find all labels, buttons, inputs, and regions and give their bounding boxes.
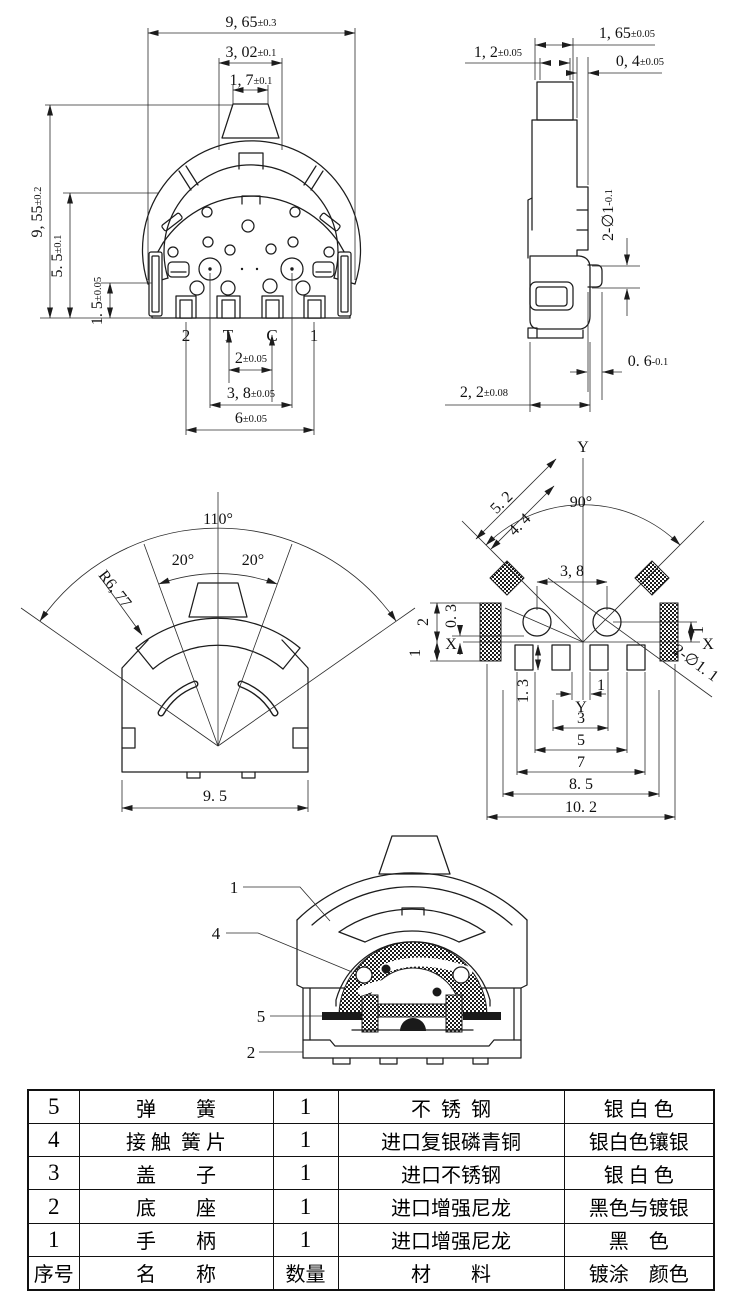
dim-side-plate-width: 0, 4±0.05 bbox=[616, 53, 664, 70]
front-view: 9, 65±0.3 3, 02±0.1 1, 7±0.1 9, 55±0.2 5… bbox=[29, 14, 360, 435]
row3-material: 进口不锈钢 bbox=[338, 1157, 564, 1190]
dim-rot-diag-outer: 5. 2 bbox=[487, 488, 516, 517]
row4-material: 进口复银磷青铜 bbox=[338, 1124, 564, 1157]
dim-rot-span102: 10. 2 bbox=[565, 799, 597, 816]
header-finish: 镀涂 颜色 bbox=[564, 1256, 714, 1290]
side-geometry bbox=[528, 82, 602, 338]
dim-side-stem-width: 1, 2±0.05 bbox=[474, 44, 522, 61]
dim-side-base-width: 2, 2±0.08 bbox=[460, 384, 508, 401]
dim-front-total-height: 9, 55±0.2 bbox=[29, 187, 46, 238]
section-geometry bbox=[297, 836, 527, 1064]
pin-label-t: T bbox=[223, 326, 234, 345]
row1-material: 进口增强尼龙 bbox=[338, 1223, 564, 1256]
row5-finish: 银 白 色 bbox=[564, 1090, 714, 1124]
table-row: 2 底 座 1 进口增强尼龙 黑色与镀银 bbox=[28, 1190, 714, 1223]
dim-rot-pad-height: 1. 3 bbox=[515, 679, 532, 703]
dim-front-body-height: 5. 5±0.1 bbox=[49, 235, 66, 278]
dim-rot-circle-span: 3, 8 bbox=[560, 563, 584, 580]
callout-4: 4 bbox=[212, 924, 221, 943]
row4-finish: 银白色镶银 bbox=[564, 1124, 714, 1157]
row3-no: 3 bbox=[28, 1157, 79, 1190]
row4-name: 接 触 簧 片 bbox=[79, 1124, 273, 1157]
row5-qty: 1 bbox=[273, 1090, 338, 1124]
section-callouts: 1 4 5 2 bbox=[212, 878, 352, 1062]
engineering-drawing: 9, 65±0.3 3, 02±0.1 1, 7±0.1 9, 55±0.2 5… bbox=[0, 0, 740, 1088]
callout-5: 5 bbox=[257, 1007, 266, 1026]
row5-no: 5 bbox=[28, 1090, 79, 1124]
fan-dimensions: 110° 20° 20° R6, 77 9. 5 bbox=[21, 492, 415, 812]
row3-finish: 银 白 色 bbox=[564, 1157, 714, 1190]
dim-fan-radius: R6, 77 bbox=[95, 567, 135, 611]
dim-rot-diag-inner: 4. 4 bbox=[505, 510, 534, 539]
dim-front-outer-width: 9, 65±0.3 bbox=[226, 14, 277, 31]
side-view: 1, 65±0.05 1, 2±0.05 0, 4±0.05 2-∅1-0.1 … bbox=[445, 25, 668, 412]
row4-no: 4 bbox=[28, 1124, 79, 1157]
section-view: 1 4 5 2 bbox=[212, 836, 527, 1064]
header-material: 材 料 bbox=[338, 1256, 564, 1290]
row2-finish: 黑色与镀银 bbox=[564, 1190, 714, 1223]
dim-fan-right-angle: 20° bbox=[242, 552, 264, 569]
row4-qty: 1 bbox=[273, 1124, 338, 1157]
front-pins bbox=[176, 296, 325, 318]
dim-side-pin-width: 0. 6-0.1 bbox=[628, 353, 669, 370]
axis-y-top-label: Y bbox=[577, 439, 589, 456]
header-qty: 数量 bbox=[273, 1256, 338, 1290]
callout-1: 1 bbox=[230, 878, 239, 897]
bom-table: 5 弹 簧 1 不 锈 钢 银 白 色 4 接 触 簧 片 1 进口复银磷青铜 … bbox=[27, 1089, 715, 1291]
dim-fan-width: 9. 5 bbox=[203, 788, 227, 805]
front-dimensions: 9, 65±0.3 3, 02±0.1 1, 7±0.1 9, 55±0.2 5… bbox=[29, 14, 355, 435]
dim-rot-left-2: 2 bbox=[415, 618, 432, 626]
dim-front-pin-pitch: 2±0.05 bbox=[235, 350, 267, 367]
dim-front-cap-width: 3, 02±0.1 bbox=[226, 44, 277, 61]
side-dimensions: 1, 65±0.05 1, 2±0.05 0, 4±0.05 2-∅1-0.1 … bbox=[445, 25, 668, 412]
dim-rot-gap: 1 bbox=[597, 677, 605, 694]
front-geometry bbox=[142, 104, 360, 318]
dim-front-rivet-span: 3, 8±0.05 bbox=[227, 385, 275, 402]
row2-name: 底 座 bbox=[79, 1190, 273, 1223]
row5-material: 不 锈 钢 bbox=[338, 1090, 564, 1124]
row5-name: 弹 簧 bbox=[79, 1090, 273, 1124]
dim-rot-span85: 8. 5 bbox=[569, 776, 593, 793]
table-row: 3 盖 子 1 进口不锈钢 银 白 色 bbox=[28, 1157, 714, 1190]
table-row: 4 接 触 簧 片 1 进口复银磷青铜 银白色镶银 bbox=[28, 1124, 714, 1157]
row1-finish: 黑 色 bbox=[564, 1223, 714, 1256]
fan-view: 110° 20° 20° R6, 77 9. 5 bbox=[21, 492, 415, 812]
row3-name: 盖 子 bbox=[79, 1157, 273, 1190]
row3-qty: 1 bbox=[273, 1157, 338, 1190]
row2-material: 进口增强尼龙 bbox=[338, 1190, 564, 1223]
rotated-view: Y X X 90° 5. 2 4. 4 2-∅1. 1 3, 8 2 1 0. … bbox=[407, 439, 721, 820]
dim-rot-span7: 7 bbox=[577, 754, 585, 771]
header-no: 序号 bbox=[28, 1256, 79, 1290]
dim-front-pin-span: 6±0.05 bbox=[235, 410, 267, 427]
table-header-row: 序号 名 称 数量 材 料 镀涂 颜色 bbox=[28, 1256, 714, 1290]
dim-rot-left-1: 1 bbox=[407, 649, 424, 657]
axis-x-left-label: X bbox=[445, 636, 457, 653]
axis-x-right-label: X bbox=[702, 636, 714, 653]
row1-no: 1 bbox=[28, 1223, 79, 1256]
table-row: 1 手 柄 1 进口增强尼龙 黑 色 bbox=[28, 1223, 714, 1256]
table-row: 5 弹 簧 1 不 锈 钢 银 白 色 bbox=[28, 1090, 714, 1124]
fan-geometry bbox=[122, 583, 308, 778]
dim-rot-angle: 90° bbox=[570, 494, 592, 511]
row2-no: 2 bbox=[28, 1190, 79, 1223]
drawing-sheet: 9, 65±0.3 3, 02±0.1 1, 7±0.1 9, 55±0.2 5… bbox=[0, 0, 740, 1300]
row2-qty: 1 bbox=[273, 1190, 338, 1223]
dim-rot-left-03: 0. 3 bbox=[443, 604, 460, 628]
header-name: 名 称 bbox=[79, 1256, 273, 1290]
dim-rot-right-1: 1 bbox=[690, 626, 707, 634]
dim-fan-total-angle: 110° bbox=[203, 511, 233, 528]
dim-side-holes: 2-∅1-0.1 bbox=[600, 189, 617, 241]
dim-front-tip-width: 1, 7±0.1 bbox=[230, 72, 273, 89]
dim-front-foot-height: 1. 5±0.05 bbox=[89, 277, 106, 325]
dim-rot-span5: 5 bbox=[577, 732, 585, 749]
dim-side-head-width: 1, 65±0.05 bbox=[599, 25, 655, 42]
front-holes bbox=[168, 207, 334, 295]
row1-name: 手 柄 bbox=[79, 1223, 273, 1256]
dim-rot-span3: 3 bbox=[577, 710, 585, 727]
row1-qty: 1 bbox=[273, 1223, 338, 1256]
dim-fan-left-angle: 20° bbox=[172, 552, 194, 569]
callout-2: 2 bbox=[247, 1043, 256, 1062]
